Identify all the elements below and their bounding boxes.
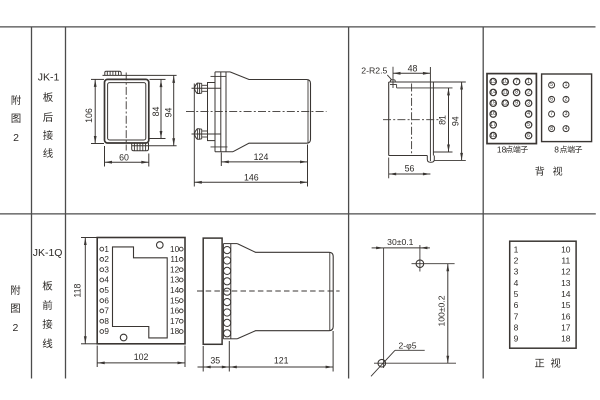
svg-text:48: 48 — [408, 64, 418, 74]
svg-text:14: 14 — [561, 289, 571, 299]
svg-text:6: 6 — [550, 97, 553, 103]
svg-text:102: 102 — [134, 352, 149, 362]
svg-text:6: 6 — [514, 300, 519, 310]
svg-text:15: 15 — [170, 296, 180, 305]
svg-text:5: 5 — [514, 289, 519, 299]
svg-text:10: 10 — [170, 245, 180, 254]
svg-text:18: 18 — [170, 327, 180, 336]
svg-text:16: 16 — [561, 311, 571, 321]
svg-text:JK-1: JK-1 — [38, 71, 60, 83]
svg-text:8: 8 — [514, 322, 519, 332]
svg-text:7: 7 — [515, 79, 518, 85]
svg-text:2: 2 — [13, 132, 19, 144]
svg-text:8: 8 — [554, 144, 559, 154]
svg-text:11: 11 — [503, 90, 508, 96]
svg-text:3: 3 — [514, 267, 519, 277]
svg-text:2: 2 — [565, 97, 568, 103]
svg-text:121: 121 — [274, 355, 289, 365]
svg-text:13: 13 — [490, 79, 496, 85]
svg-text:10: 10 — [502, 79, 508, 85]
svg-text:JK-1Q: JK-1Q — [33, 247, 63, 259]
svg-text:11: 11 — [561, 256, 570, 266]
svg-text:7: 7 — [550, 111, 553, 117]
svg-text:1: 1 — [514, 244, 519, 254]
svg-text:8: 8 — [104, 317, 109, 326]
svg-text:12: 12 — [502, 100, 508, 106]
svg-text:8: 8 — [550, 126, 553, 132]
svg-text:5: 5 — [550, 82, 553, 88]
svg-text:2-φ5: 2-φ5 — [399, 341, 417, 351]
svg-text:4: 4 — [565, 126, 568, 132]
svg-text:2: 2 — [12, 322, 18, 334]
svg-text:13: 13 — [561, 278, 571, 288]
svg-text:9: 9 — [514, 334, 519, 344]
svg-text:1: 1 — [527, 79, 530, 85]
svg-text:94: 94 — [450, 116, 460, 126]
svg-text:2: 2 — [514, 256, 519, 266]
svg-text:3: 3 — [104, 265, 109, 274]
svg-text:4: 4 — [104, 276, 109, 285]
svg-text:12: 12 — [170, 265, 180, 274]
svg-text:13: 13 — [170, 276, 180, 285]
svg-text:15: 15 — [490, 100, 496, 106]
svg-text:60: 60 — [119, 152, 129, 162]
svg-text:56: 56 — [405, 164, 415, 174]
svg-text:30±0.1: 30±0.1 — [387, 237, 413, 247]
svg-text:84: 84 — [151, 107, 161, 117]
svg-text:2: 2 — [104, 255, 109, 264]
svg-text:17: 17 — [170, 317, 180, 326]
svg-text:17: 17 — [561, 322, 571, 332]
svg-text:4: 4 — [527, 111, 530, 117]
svg-text:7: 7 — [514, 311, 519, 321]
svg-text:4: 4 — [514, 278, 519, 288]
svg-text:17: 17 — [490, 122, 496, 128]
svg-text:81: 81 — [438, 115, 448, 125]
svg-text:124: 124 — [254, 152, 269, 162]
svg-text:100±0.2: 100±0.2 — [436, 295, 446, 326]
svg-text:2-R2.5: 2-R2.5 — [361, 65, 387, 75]
svg-text:6: 6 — [104, 296, 109, 305]
svg-text:1: 1 — [565, 82, 568, 88]
svg-text:9: 9 — [515, 100, 518, 106]
svg-text:18: 18 — [561, 334, 571, 344]
svg-text:16: 16 — [490, 111, 496, 117]
svg-text:14: 14 — [170, 286, 180, 295]
svg-text:118: 118 — [73, 284, 83, 298]
svg-text:2: 2 — [527, 90, 530, 96]
svg-text:18: 18 — [497, 144, 507, 154]
svg-text:9: 9 — [104, 327, 109, 336]
svg-text:6: 6 — [527, 133, 530, 139]
svg-text:106: 106 — [84, 108, 94, 123]
svg-text:35: 35 — [210, 355, 220, 365]
svg-text:11: 11 — [170, 255, 179, 264]
svg-text:16: 16 — [170, 307, 180, 316]
svg-text:8: 8 — [515, 90, 518, 96]
svg-text:7: 7 — [104, 307, 109, 316]
svg-text:10: 10 — [561, 244, 571, 254]
svg-text:18: 18 — [490, 133, 496, 139]
svg-text:5: 5 — [527, 122, 530, 128]
svg-text:3: 3 — [565, 111, 568, 117]
svg-text:3: 3 — [527, 100, 530, 106]
svg-text:94: 94 — [164, 108, 174, 118]
svg-text:5: 5 — [104, 286, 109, 295]
svg-text:1: 1 — [104, 245, 109, 254]
svg-text:14: 14 — [490, 90, 496, 96]
svg-text:146: 146 — [244, 172, 259, 182]
svg-text:15: 15 — [561, 300, 571, 310]
svg-text:12: 12 — [561, 267, 571, 277]
